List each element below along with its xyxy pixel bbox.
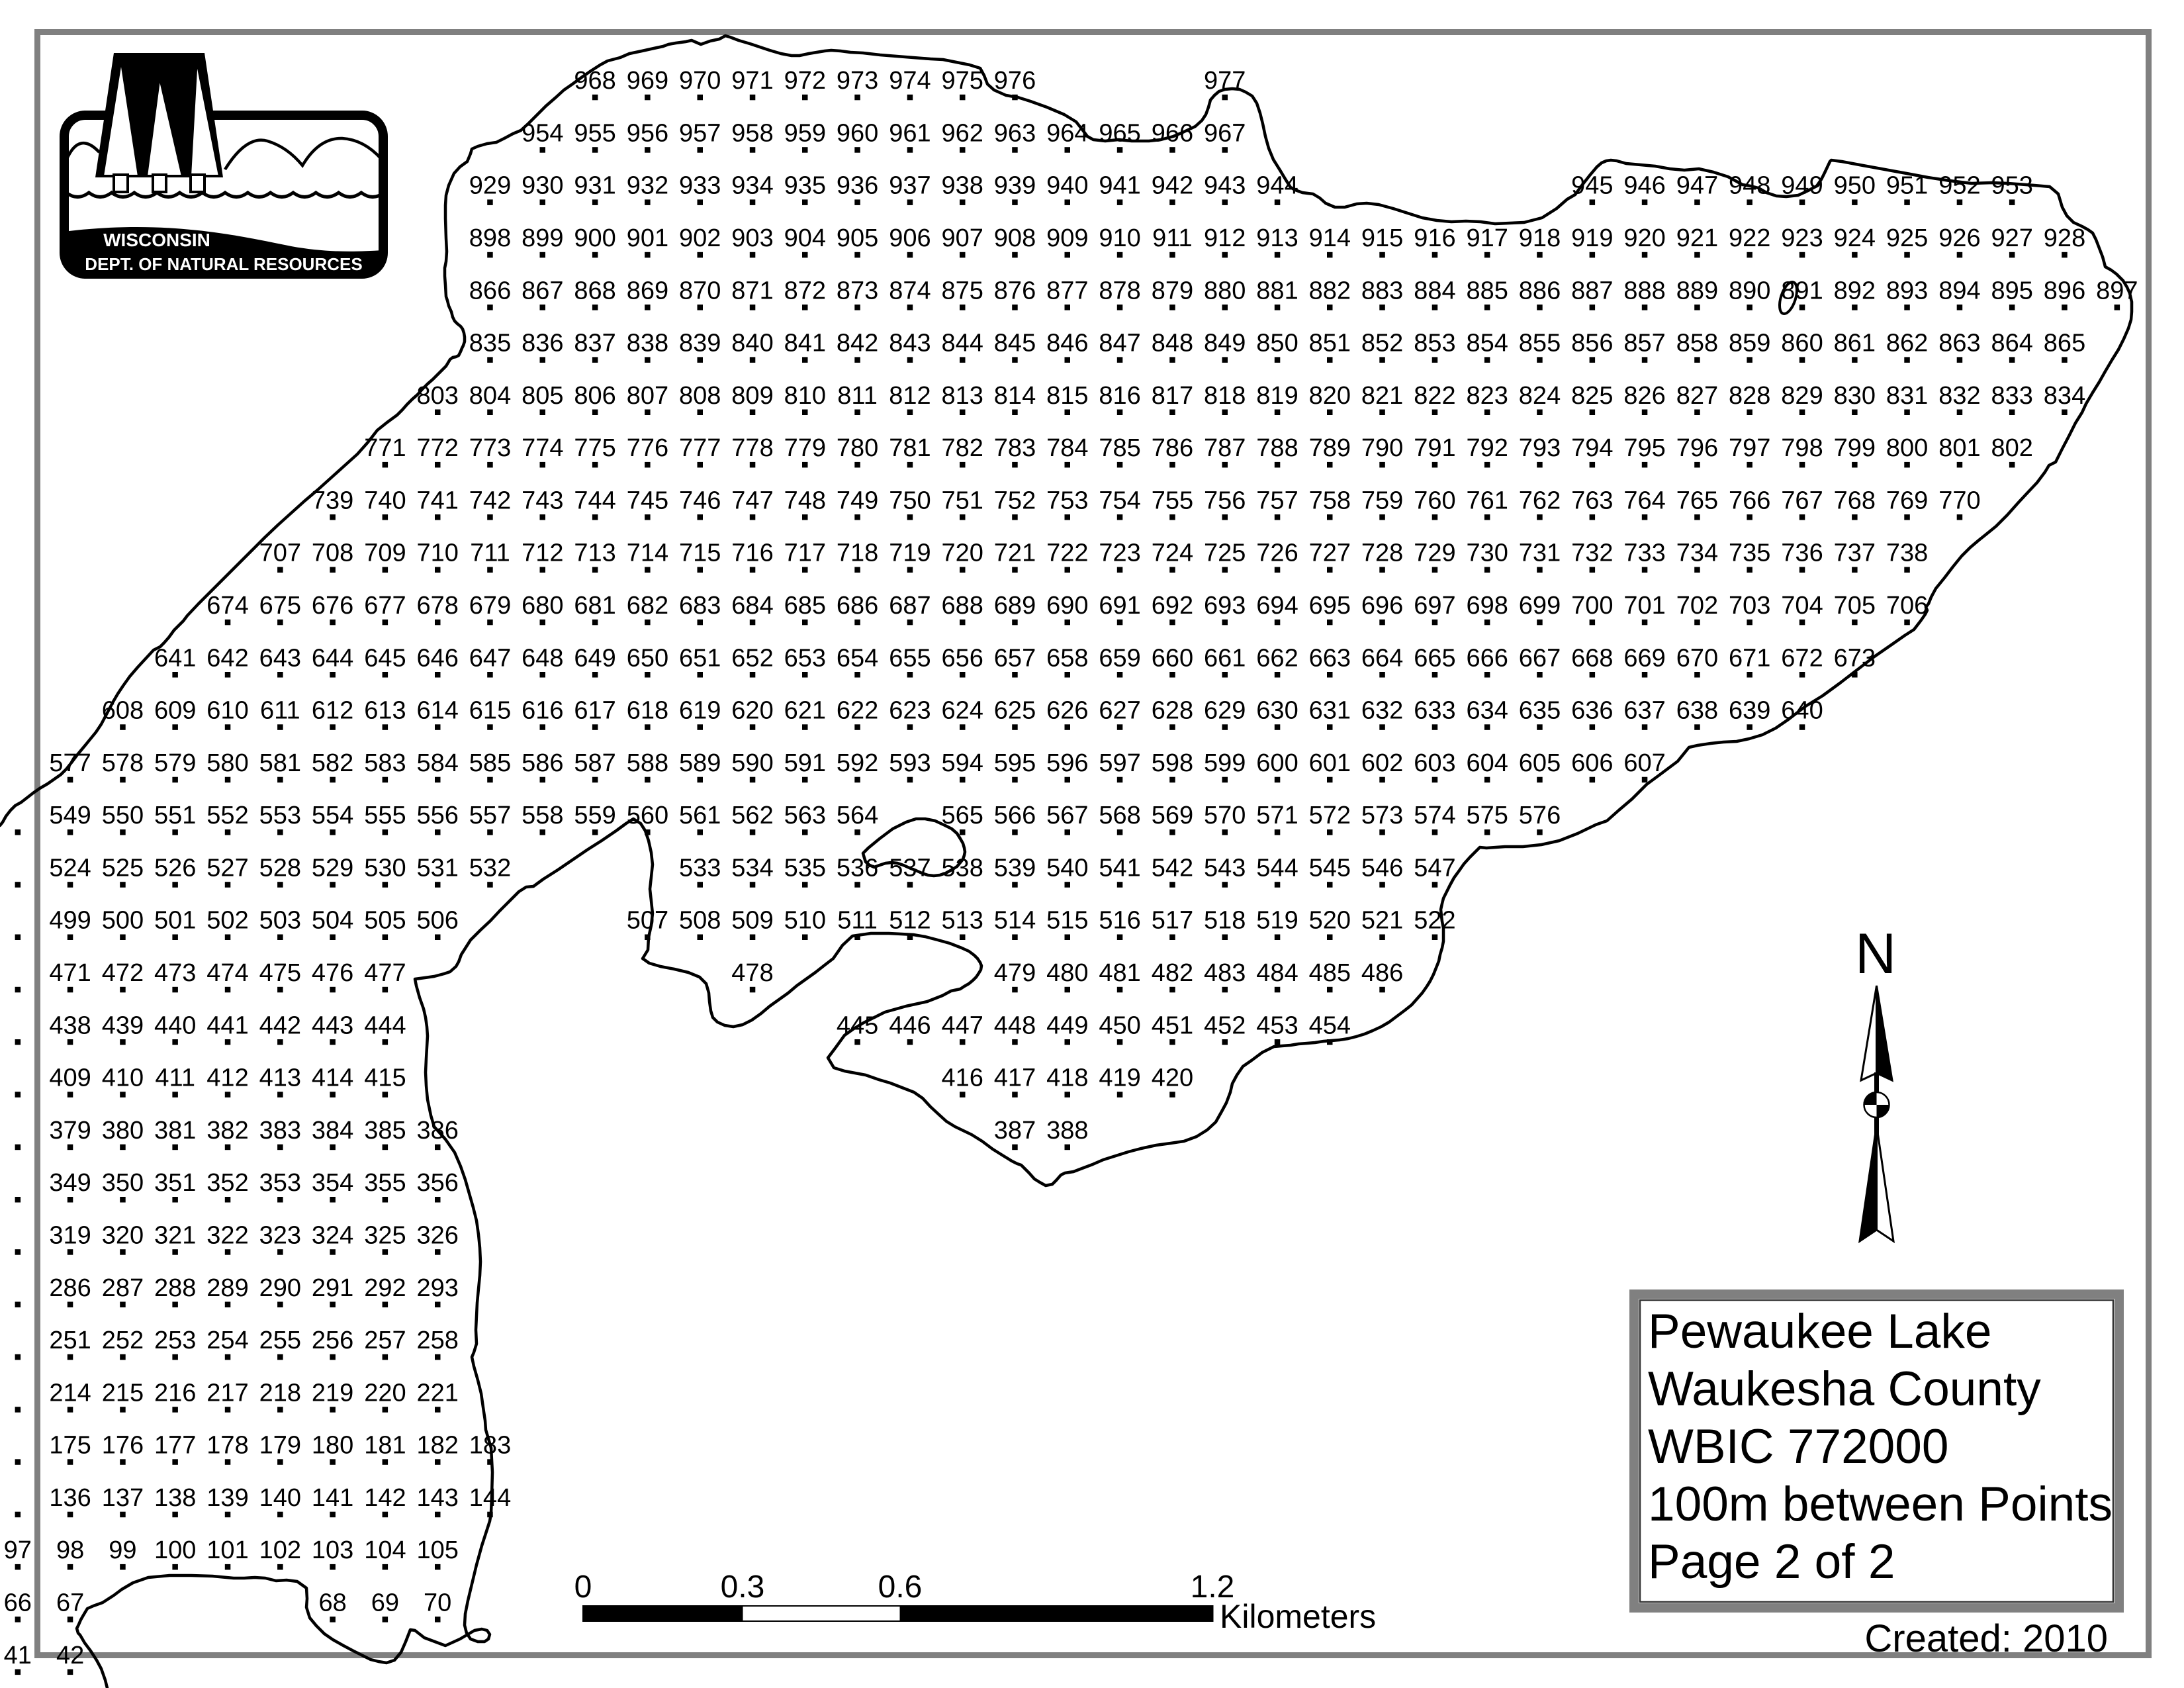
svg-text:780: 780 xyxy=(837,434,878,462)
svg-text:819: 819 xyxy=(1256,382,1298,410)
svg-text:440: 440 xyxy=(154,1011,196,1039)
svg-text:711: 711 xyxy=(470,539,510,567)
svg-text:483: 483 xyxy=(1204,959,1246,987)
svg-text:649: 649 xyxy=(574,644,615,672)
svg-text:886: 886 xyxy=(1519,277,1561,305)
svg-text:946: 946 xyxy=(1623,172,1665,200)
svg-text:588: 588 xyxy=(627,749,668,777)
svg-text:665: 665 xyxy=(1414,644,1455,672)
svg-text:940: 940 xyxy=(1046,172,1088,200)
svg-text:839: 839 xyxy=(679,330,721,357)
svg-text:571: 571 xyxy=(1256,802,1298,829)
svg-text:850: 850 xyxy=(1256,330,1298,357)
svg-text:760: 760 xyxy=(1414,487,1455,514)
svg-text:869: 869 xyxy=(627,277,668,305)
svg-text:178: 178 xyxy=(206,1432,248,1460)
svg-text:919: 919 xyxy=(1571,224,1613,252)
svg-text:41: 41 xyxy=(4,1642,32,1669)
svg-text:922: 922 xyxy=(1729,224,1770,252)
svg-text:634: 634 xyxy=(1466,697,1508,725)
svg-text:976: 976 xyxy=(994,67,1036,95)
svg-text:574: 574 xyxy=(1414,802,1455,829)
svg-text:539: 539 xyxy=(994,855,1036,882)
svg-text:584: 584 xyxy=(416,749,458,777)
svg-text:99: 99 xyxy=(109,1536,136,1564)
svg-text:857: 857 xyxy=(1623,330,1665,357)
svg-text:960: 960 xyxy=(837,119,878,147)
svg-text:454: 454 xyxy=(1309,1011,1351,1039)
svg-text:901: 901 xyxy=(627,224,668,252)
svg-text:813: 813 xyxy=(941,382,983,410)
svg-text:413: 413 xyxy=(259,1064,301,1092)
svg-text:771: 771 xyxy=(364,434,406,462)
svg-text:642: 642 xyxy=(206,644,248,672)
svg-text:579: 579 xyxy=(154,749,196,777)
svg-text:679: 679 xyxy=(469,592,511,620)
svg-text:380: 380 xyxy=(102,1117,144,1145)
svg-text:525: 525 xyxy=(102,855,144,882)
svg-text:180: 180 xyxy=(312,1432,353,1460)
svg-text:527: 527 xyxy=(206,855,248,882)
svg-text:624: 624 xyxy=(941,697,983,725)
svg-text:924: 924 xyxy=(1834,224,1876,252)
svg-text:219: 219 xyxy=(312,1379,353,1407)
svg-text:830: 830 xyxy=(1834,382,1876,410)
svg-text:653: 653 xyxy=(784,644,826,672)
svg-text:800: 800 xyxy=(1886,434,1928,462)
svg-text:789: 789 xyxy=(1309,434,1351,462)
svg-text:678: 678 xyxy=(416,592,458,620)
svg-text:716: 716 xyxy=(731,539,773,567)
svg-text:902: 902 xyxy=(679,224,721,252)
svg-text:801: 801 xyxy=(1938,434,1980,462)
svg-text:619: 619 xyxy=(679,697,721,725)
svg-text:722: 722 xyxy=(1046,539,1088,567)
svg-text:892: 892 xyxy=(1834,277,1876,305)
svg-text:804: 804 xyxy=(469,382,511,410)
svg-text:855: 855 xyxy=(1519,330,1561,357)
svg-text:974: 974 xyxy=(889,67,931,95)
svg-text:558: 558 xyxy=(522,802,563,829)
svg-text:775: 775 xyxy=(574,434,615,462)
svg-text:538: 538 xyxy=(941,855,983,882)
svg-text:255: 255 xyxy=(259,1327,301,1354)
svg-text:598: 598 xyxy=(1152,749,1193,777)
svg-text:599: 599 xyxy=(1204,749,1246,777)
svg-text:701: 701 xyxy=(1623,592,1665,620)
svg-text:872: 872 xyxy=(784,277,826,305)
svg-text:885: 885 xyxy=(1466,277,1508,305)
svg-text:809: 809 xyxy=(731,382,773,410)
svg-text:953: 953 xyxy=(1991,172,2032,200)
svg-text:841: 841 xyxy=(784,330,826,357)
svg-text:650: 650 xyxy=(627,644,668,672)
svg-text:842: 842 xyxy=(837,330,878,357)
svg-text:291: 291 xyxy=(312,1274,353,1302)
svg-text:143: 143 xyxy=(416,1484,458,1512)
svg-text:70: 70 xyxy=(424,1589,451,1617)
svg-text:807: 807 xyxy=(627,382,668,410)
svg-text:258: 258 xyxy=(416,1327,458,1354)
svg-text:625: 625 xyxy=(994,697,1036,725)
svg-text:612: 612 xyxy=(312,697,353,725)
svg-text:101: 101 xyxy=(206,1536,248,1564)
svg-text:100m between Points: 100m between Points xyxy=(1648,1477,2113,1531)
svg-text:888: 888 xyxy=(1623,277,1665,305)
svg-text:861: 861 xyxy=(1834,330,1876,357)
svg-text:923: 923 xyxy=(1781,224,1823,252)
svg-text:622: 622 xyxy=(837,697,878,725)
svg-text:636: 636 xyxy=(1571,697,1613,725)
svg-text:0.3: 0.3 xyxy=(721,1570,765,1605)
svg-text:751: 751 xyxy=(941,487,983,514)
svg-text:776: 776 xyxy=(627,434,668,462)
svg-text:927: 927 xyxy=(1991,224,2032,252)
svg-text:630: 630 xyxy=(1256,697,1298,725)
svg-text:683: 683 xyxy=(679,592,721,620)
svg-text:319: 319 xyxy=(49,1222,91,1250)
svg-text:718: 718 xyxy=(837,539,878,567)
svg-text:889: 889 xyxy=(1676,277,1718,305)
svg-text:930: 930 xyxy=(522,172,563,200)
svg-text:698: 698 xyxy=(1466,592,1508,620)
svg-text:723: 723 xyxy=(1099,539,1140,567)
svg-text:633: 633 xyxy=(1414,697,1455,725)
svg-text:908: 908 xyxy=(994,224,1036,252)
svg-text:785: 785 xyxy=(1099,434,1140,462)
svg-text:349: 349 xyxy=(49,1169,91,1197)
svg-text:676: 676 xyxy=(312,592,353,620)
svg-text:822: 822 xyxy=(1414,382,1455,410)
svg-text:911: 911 xyxy=(1152,224,1193,252)
svg-text:765: 765 xyxy=(1676,487,1718,514)
svg-text:554: 554 xyxy=(312,802,353,829)
svg-text:410: 410 xyxy=(102,1064,144,1092)
svg-text:385: 385 xyxy=(364,1117,406,1145)
svg-text:805: 805 xyxy=(522,382,563,410)
svg-text:616: 616 xyxy=(522,697,563,725)
svg-text:682: 682 xyxy=(627,592,668,620)
svg-text:756: 756 xyxy=(1204,487,1246,514)
svg-text:614: 614 xyxy=(416,697,458,725)
svg-text:603: 603 xyxy=(1414,749,1455,777)
svg-text:887: 887 xyxy=(1571,277,1613,305)
svg-text:660: 660 xyxy=(1152,644,1193,672)
svg-text:104: 104 xyxy=(364,1536,406,1564)
svg-text:873: 873 xyxy=(837,277,878,305)
svg-text:0: 0 xyxy=(574,1570,592,1605)
svg-text:705: 705 xyxy=(1834,592,1876,620)
svg-text:563: 563 xyxy=(784,802,826,829)
svg-text:Pewaukee Lake: Pewaukee Lake xyxy=(1648,1305,1991,1358)
svg-text:620: 620 xyxy=(731,697,773,725)
svg-text:694: 694 xyxy=(1256,592,1298,620)
svg-text:453: 453 xyxy=(1256,1011,1298,1039)
svg-text:182: 182 xyxy=(416,1432,458,1460)
svg-text:863: 863 xyxy=(1938,330,1980,357)
svg-text:796: 796 xyxy=(1676,434,1718,462)
svg-text:628: 628 xyxy=(1152,697,1193,725)
svg-text:631: 631 xyxy=(1309,697,1351,725)
svg-text:69: 69 xyxy=(371,1589,399,1617)
svg-text:416: 416 xyxy=(941,1064,983,1092)
svg-text:439: 439 xyxy=(102,1011,144,1039)
svg-text:290: 290 xyxy=(259,1274,301,1302)
svg-text:136: 136 xyxy=(49,1484,91,1512)
svg-text:215: 215 xyxy=(102,1379,144,1407)
svg-text:968: 968 xyxy=(574,67,615,95)
svg-text:452: 452 xyxy=(1204,1011,1246,1039)
svg-text:105: 105 xyxy=(416,1536,458,1564)
svg-text:381: 381 xyxy=(154,1117,196,1145)
svg-text:144: 144 xyxy=(469,1484,511,1512)
svg-text:325: 325 xyxy=(364,1222,406,1250)
svg-text:656: 656 xyxy=(941,644,983,672)
svg-text:139: 139 xyxy=(206,1484,248,1512)
svg-text:918: 918 xyxy=(1519,224,1561,252)
svg-text:860: 860 xyxy=(1781,330,1823,357)
svg-text:567: 567 xyxy=(1046,802,1088,829)
svg-text:703: 703 xyxy=(1729,592,1770,620)
svg-text:969: 969 xyxy=(627,67,668,95)
svg-text:505: 505 xyxy=(364,907,406,935)
svg-text:387: 387 xyxy=(994,1117,1036,1145)
svg-text:645: 645 xyxy=(364,644,406,672)
svg-text:WISCONSIN: WISCONSIN xyxy=(103,230,210,250)
svg-text:821: 821 xyxy=(1361,382,1403,410)
svg-text:473: 473 xyxy=(154,959,196,987)
svg-text:791: 791 xyxy=(1414,434,1455,462)
svg-text:948: 948 xyxy=(1729,172,1770,200)
svg-text:700: 700 xyxy=(1571,592,1613,620)
svg-text:792: 792 xyxy=(1466,434,1508,462)
svg-text:829: 829 xyxy=(1781,382,1823,410)
svg-text:595: 595 xyxy=(994,749,1036,777)
svg-text:610: 610 xyxy=(206,697,248,725)
svg-text:749: 749 xyxy=(837,487,878,514)
svg-text:810: 810 xyxy=(784,382,826,410)
svg-text:955: 955 xyxy=(574,119,615,147)
svg-text:856: 856 xyxy=(1571,330,1613,357)
svg-text:609: 609 xyxy=(154,697,196,725)
svg-text:605: 605 xyxy=(1519,749,1561,777)
svg-text:928: 928 xyxy=(2044,224,2085,252)
svg-text:477: 477 xyxy=(364,959,406,987)
svg-text:816: 816 xyxy=(1099,382,1140,410)
svg-text:943: 943 xyxy=(1204,172,1246,200)
svg-text:882: 882 xyxy=(1309,277,1351,305)
svg-text:663: 663 xyxy=(1309,644,1351,672)
svg-text:817: 817 xyxy=(1152,382,1193,410)
svg-text:486: 486 xyxy=(1361,959,1403,987)
svg-text:895: 895 xyxy=(1991,277,2032,305)
svg-text:808: 808 xyxy=(679,382,721,410)
svg-text:708: 708 xyxy=(312,539,353,567)
svg-text:954: 954 xyxy=(522,119,563,147)
svg-text:419: 419 xyxy=(1099,1064,1140,1092)
svg-text:950: 950 xyxy=(1834,172,1876,200)
svg-text:937: 937 xyxy=(889,172,931,200)
svg-text:570: 570 xyxy=(1204,802,1246,829)
svg-text:790: 790 xyxy=(1361,434,1403,462)
svg-text:746: 746 xyxy=(679,487,721,514)
svg-text:896: 896 xyxy=(2044,277,2085,305)
svg-text:293: 293 xyxy=(416,1274,458,1302)
svg-text:734: 734 xyxy=(1676,539,1718,567)
svg-text:566: 566 xyxy=(994,802,1036,829)
svg-text:834: 834 xyxy=(2044,382,2085,410)
svg-text:727: 727 xyxy=(1309,539,1351,567)
svg-text:681: 681 xyxy=(574,592,615,620)
svg-text:379: 379 xyxy=(49,1117,91,1145)
svg-text:414: 414 xyxy=(312,1064,353,1092)
svg-text:516: 516 xyxy=(1099,907,1140,935)
svg-text:710: 710 xyxy=(416,539,458,567)
svg-text:Kilometers: Kilometers xyxy=(1220,1598,1376,1635)
svg-text:823: 823 xyxy=(1466,382,1508,410)
svg-text:627: 627 xyxy=(1099,697,1140,725)
svg-text:629: 629 xyxy=(1204,697,1246,725)
svg-text:947: 947 xyxy=(1676,172,1718,200)
svg-text:502: 502 xyxy=(206,907,248,935)
svg-text:758: 758 xyxy=(1309,487,1351,514)
svg-text:568: 568 xyxy=(1099,802,1140,829)
svg-text:442: 442 xyxy=(259,1011,301,1039)
svg-text:384: 384 xyxy=(312,1117,353,1145)
svg-text:837: 837 xyxy=(574,330,615,357)
svg-text:784: 784 xyxy=(1046,434,1088,462)
svg-text:662: 662 xyxy=(1256,644,1298,672)
svg-text:704: 704 xyxy=(1781,592,1823,620)
svg-text:725: 725 xyxy=(1204,539,1246,567)
svg-text:532: 532 xyxy=(469,855,511,882)
svg-text:594: 594 xyxy=(941,749,983,777)
svg-text:733: 733 xyxy=(1623,539,1665,567)
svg-text:975: 975 xyxy=(941,67,983,95)
svg-text:874: 874 xyxy=(889,277,931,305)
svg-text:383: 383 xyxy=(259,1117,301,1145)
svg-text:621: 621 xyxy=(784,697,826,725)
svg-text:640: 640 xyxy=(1781,697,1823,725)
svg-text:471: 471 xyxy=(49,959,91,987)
svg-text:762: 762 xyxy=(1519,487,1561,514)
svg-text:501: 501 xyxy=(154,907,196,935)
svg-text:814: 814 xyxy=(994,382,1036,410)
svg-text:511: 511 xyxy=(837,907,878,935)
svg-text:592: 592 xyxy=(837,749,878,777)
svg-text:626: 626 xyxy=(1046,697,1088,725)
svg-text:768: 768 xyxy=(1834,487,1876,514)
svg-text:138: 138 xyxy=(154,1484,196,1512)
svg-text:831: 831 xyxy=(1886,382,1928,410)
svg-text:177: 177 xyxy=(154,1432,196,1460)
svg-text:388: 388 xyxy=(1046,1117,1088,1145)
svg-text:958: 958 xyxy=(731,119,773,147)
svg-text:652: 652 xyxy=(731,644,773,672)
svg-text:798: 798 xyxy=(1781,434,1823,462)
svg-text:646: 646 xyxy=(416,644,458,672)
svg-text:445: 445 xyxy=(837,1011,878,1039)
svg-text:879: 879 xyxy=(1152,277,1193,305)
svg-text:769: 769 xyxy=(1886,487,1928,514)
svg-text:864: 864 xyxy=(1991,330,2032,357)
svg-text:519: 519 xyxy=(1256,907,1298,935)
svg-text:903: 903 xyxy=(731,224,773,252)
svg-text:531: 531 xyxy=(416,855,458,882)
svg-text:906: 906 xyxy=(889,224,931,252)
svg-text:675: 675 xyxy=(259,592,301,620)
svg-text:685: 685 xyxy=(784,592,826,620)
svg-text:451: 451 xyxy=(1152,1011,1193,1039)
svg-text:510: 510 xyxy=(784,907,826,935)
svg-text:668: 668 xyxy=(1571,644,1613,672)
svg-text:779: 779 xyxy=(784,434,826,462)
svg-text:890: 890 xyxy=(1729,277,1770,305)
svg-text:876: 876 xyxy=(994,277,1036,305)
svg-text:783: 783 xyxy=(994,434,1036,462)
svg-text:868: 868 xyxy=(574,277,615,305)
svg-text:500: 500 xyxy=(102,907,144,935)
svg-text:738: 738 xyxy=(1886,539,1928,567)
svg-text:534: 534 xyxy=(731,855,773,882)
svg-text:216: 216 xyxy=(154,1379,196,1407)
svg-text:905: 905 xyxy=(837,224,878,252)
svg-text:654: 654 xyxy=(837,644,878,672)
svg-text:181: 181 xyxy=(364,1432,406,1460)
svg-text:438: 438 xyxy=(49,1011,91,1039)
svg-text:959: 959 xyxy=(784,119,826,147)
svg-text:351: 351 xyxy=(154,1169,196,1197)
svg-text:764: 764 xyxy=(1623,487,1665,514)
svg-text:883: 883 xyxy=(1361,277,1403,305)
svg-text:967: 967 xyxy=(1204,119,1246,147)
svg-text:740: 740 xyxy=(364,487,406,514)
svg-text:506: 506 xyxy=(416,907,458,935)
svg-text:214: 214 xyxy=(49,1379,91,1407)
svg-text:944: 944 xyxy=(1256,172,1298,200)
svg-text:713: 713 xyxy=(574,539,615,567)
svg-text:596: 596 xyxy=(1046,749,1088,777)
svg-text:774: 774 xyxy=(522,434,563,462)
svg-text:865: 865 xyxy=(2044,330,2085,357)
svg-text:444: 444 xyxy=(364,1011,406,1039)
svg-text:891: 891 xyxy=(1781,277,1823,305)
svg-text:503: 503 xyxy=(259,907,301,935)
svg-text:925: 925 xyxy=(1886,224,1928,252)
svg-text:900: 900 xyxy=(574,224,615,252)
svg-text:632: 632 xyxy=(1361,697,1403,725)
svg-text:537: 537 xyxy=(889,855,931,882)
svg-text:449: 449 xyxy=(1046,1011,1088,1039)
svg-text:530: 530 xyxy=(364,855,406,882)
svg-text:806: 806 xyxy=(574,382,615,410)
svg-text:183: 183 xyxy=(469,1432,511,1460)
svg-text:386: 386 xyxy=(416,1117,458,1145)
svg-text:777: 777 xyxy=(679,434,721,462)
svg-text:907: 907 xyxy=(941,224,983,252)
svg-text:712: 712 xyxy=(522,539,563,567)
svg-text:289: 289 xyxy=(206,1274,248,1302)
svg-text:941: 941 xyxy=(1099,172,1140,200)
svg-text:772: 772 xyxy=(416,434,458,462)
svg-text:666: 666 xyxy=(1466,644,1508,672)
svg-text:866: 866 xyxy=(469,277,511,305)
svg-text:520: 520 xyxy=(1309,907,1351,935)
svg-text:788: 788 xyxy=(1256,434,1298,462)
svg-text:935: 935 xyxy=(784,172,826,200)
svg-text:103: 103 xyxy=(312,1536,353,1564)
svg-text:657: 657 xyxy=(994,644,1036,672)
